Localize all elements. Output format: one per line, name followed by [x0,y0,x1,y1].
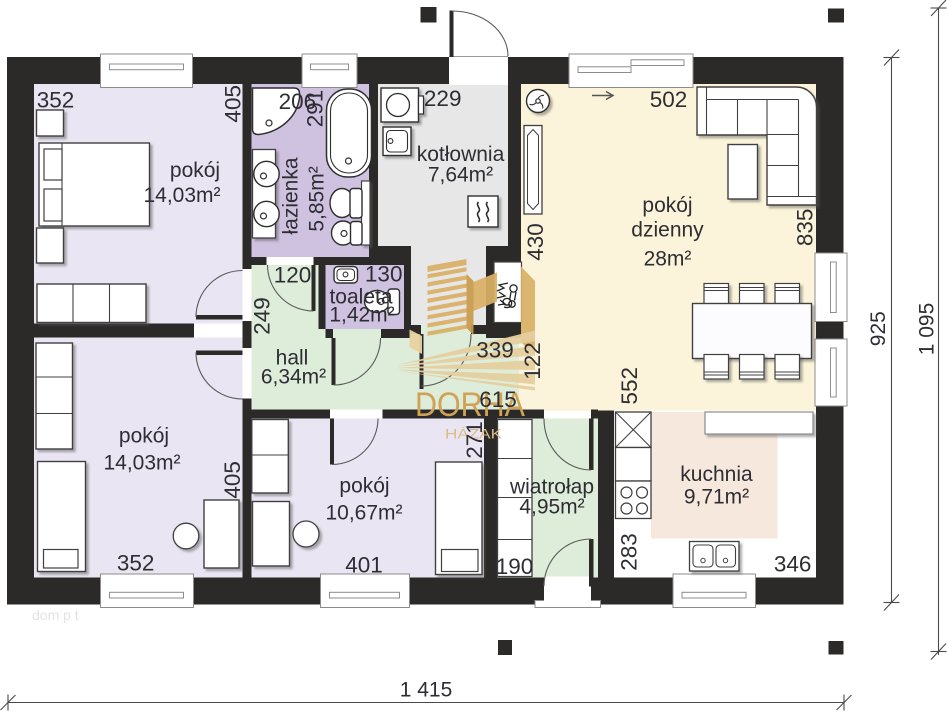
svg-text:pokój: pokój [170,159,220,182]
svg-text:5,85m²: 5,85m² [306,166,329,231]
svg-text:283: 283 [617,533,642,571]
svg-text:14,03m²: 14,03m² [103,452,180,475]
svg-text:552: 552 [617,367,642,405]
svg-text:405: 405 [221,85,246,123]
svg-text:352: 352 [37,88,75,113]
svg-text:pokój: pokój [642,194,692,217]
svg-text:10,67m²: 10,67m² [325,502,402,525]
svg-text:615: 615 [479,387,517,412]
svg-text:1 415: 1 415 [400,679,453,702]
svg-text:271: 271 [462,421,487,459]
svg-text:1 095: 1 095 [916,303,939,356]
svg-text:kuchnia: kuchnia [680,463,753,486]
svg-text:dzienny: dzienny [631,219,704,242]
svg-text:249: 249 [249,297,274,335]
svg-text:1,42m²: 1,42m² [329,304,394,327]
svg-text:346: 346 [774,552,812,577]
svg-text:28m²: 28m² [644,248,692,271]
svg-text:835: 835 [793,209,818,247]
svg-text:4,95m²: 4,95m² [519,496,584,519]
svg-text:122: 122 [520,342,545,380]
svg-text:pokój: pokój [119,425,169,448]
svg-text:7,64m²: 7,64m² [428,164,493,187]
svg-text:łazienka: łazienka [280,157,303,234]
svg-text:352: 352 [117,551,155,576]
svg-text:6,34m²: 6,34m² [261,366,326,389]
svg-text:291: 291 [303,90,328,128]
svg-text:430: 430 [523,223,548,261]
svg-text:339: 339 [476,338,514,363]
svg-text:401: 401 [345,553,383,578]
svg-text:dom p t: dom p t [32,607,79,623]
svg-text:9,71m²: 9,71m² [684,486,749,509]
svg-text:130: 130 [365,262,403,287]
svg-text:pokój: pokój [339,475,389,498]
svg-text:190: 190 [496,554,534,579]
svg-text:229: 229 [424,86,462,111]
svg-text:14,03m²: 14,03m² [143,184,220,207]
svg-text:405: 405 [220,461,245,499]
svg-text:925: 925 [867,311,890,346]
svg-text:120: 120 [274,263,312,288]
svg-text:502: 502 [650,87,688,112]
